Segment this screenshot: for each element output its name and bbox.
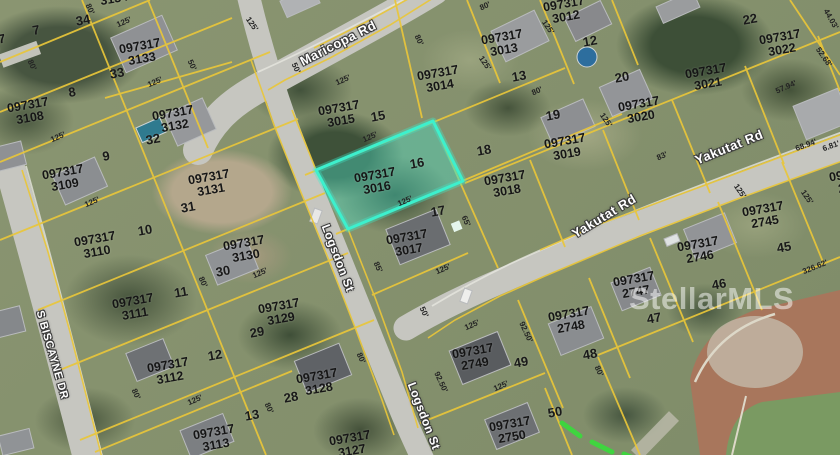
house [180, 413, 234, 455]
ballfield-infield [707, 316, 803, 388]
house [656, 0, 700, 23]
house [449, 332, 511, 385]
map-canvas[interactable]: 097317 3134097317 3107097317 3133097317 … [0, 0, 840, 455]
house [548, 307, 603, 356]
house [599, 69, 652, 116]
swimming-pool [136, 117, 166, 142]
house [491, 10, 549, 62]
house [126, 339, 174, 382]
house [564, 1, 611, 42]
house [541, 99, 595, 145]
house [206, 239, 259, 285]
house [793, 88, 840, 139]
house [280, 0, 320, 18]
parcel-corner-marker [451, 220, 463, 232]
house [0, 428, 34, 455]
road-s-biscayne-dr [10, 168, 88, 455]
house [485, 403, 540, 450]
highlighted-parcel-group [316, 121, 463, 232]
house [0, 306, 26, 338]
road-maricopa-rd [198, 0, 434, 150]
survey-dashes [562, 423, 642, 455]
map-overlay [0, 0, 840, 455]
watermark: StellarMLS [629, 281, 794, 317]
house [386, 209, 450, 264]
round-pool [577, 47, 597, 67]
house [684, 213, 737, 259]
trailer [664, 234, 680, 247]
house [52, 157, 107, 205]
house [294, 343, 351, 393]
ballfield-path [636, 416, 674, 455]
